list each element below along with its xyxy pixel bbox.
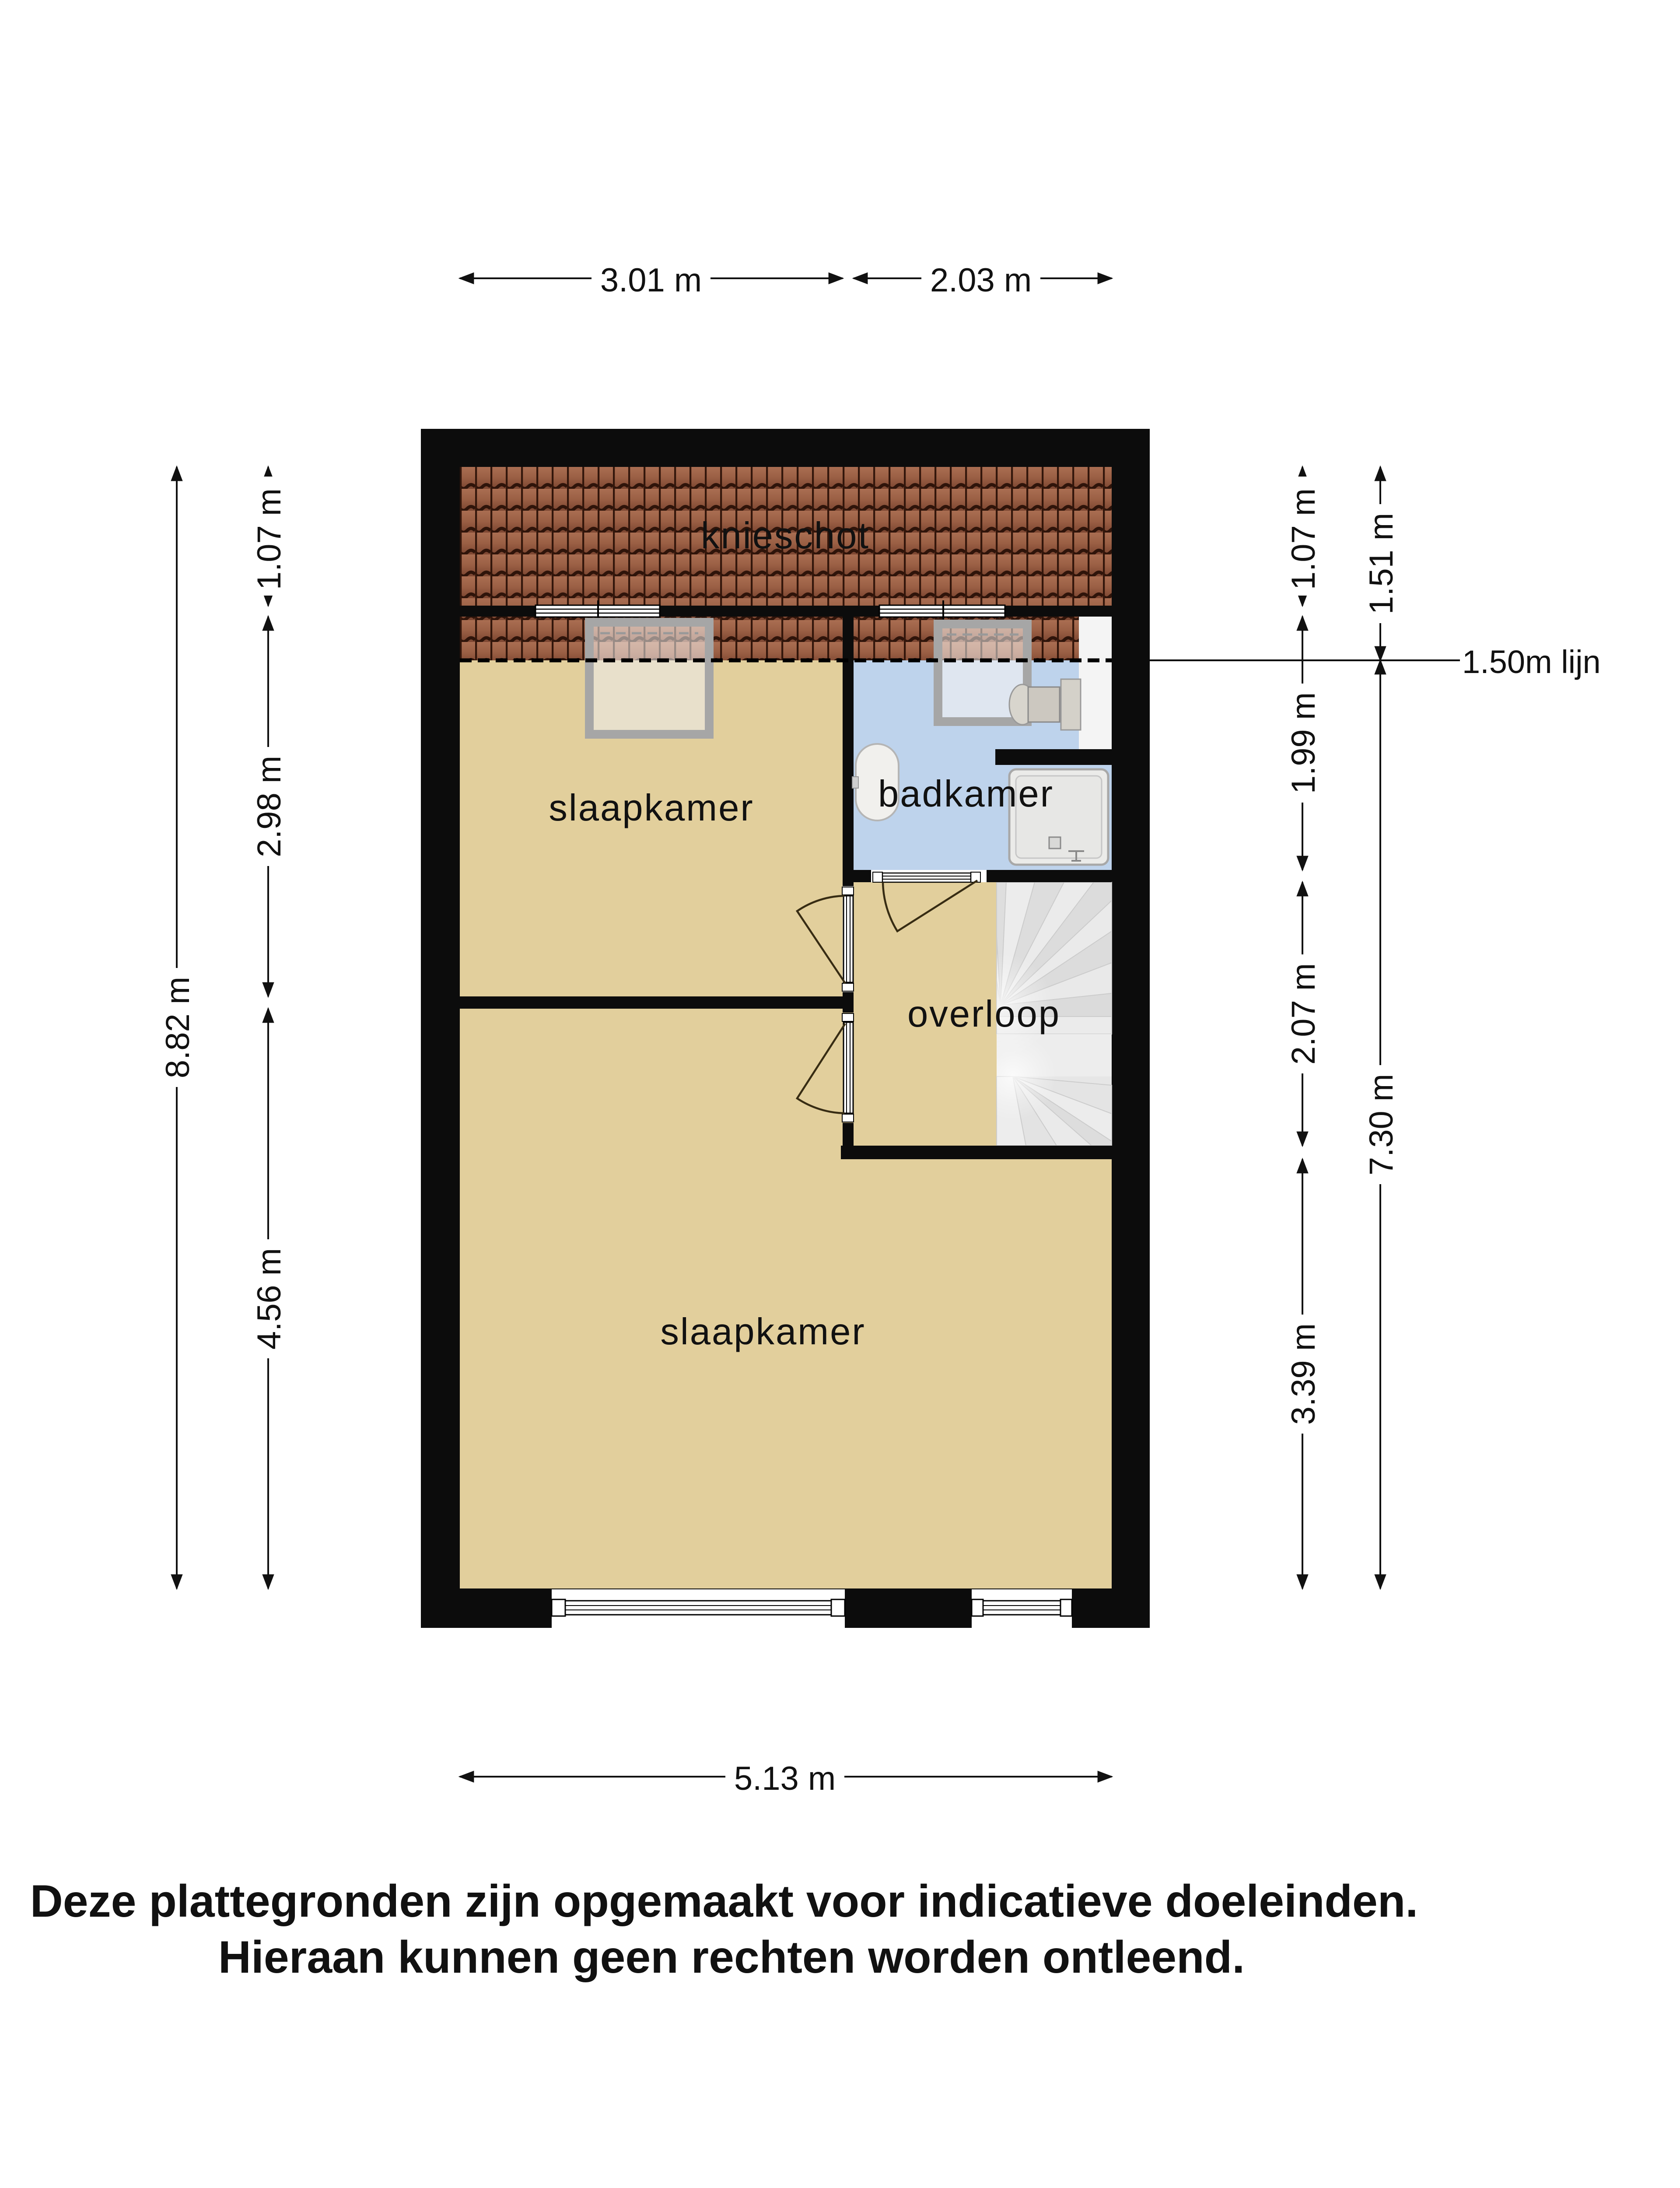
svg-text:1.51 m: 1.51 m <box>1363 513 1400 614</box>
svg-text:1.07 m: 1.07 m <box>1285 488 1322 590</box>
svg-text:slaapkamer: slaapkamer <box>549 787 754 829</box>
svg-text:5.13 m: 5.13 m <box>734 1760 836 1797</box>
svg-text:2.07 m: 2.07 m <box>1285 963 1322 1065</box>
svg-text:7.30 m: 7.30 m <box>1363 1074 1400 1175</box>
svg-text:1.99 m: 1.99 m <box>1285 692 1322 794</box>
svg-text:Deze plattegronden zijn opgema: Deze plattegronden zijn opgemaakt voor i… <box>30 1876 1418 1927</box>
svg-text:1.50m lijn: 1.50m lijn <box>1462 644 1601 680</box>
svg-text:2.98 m: 2.98 m <box>251 756 288 857</box>
svg-text:badkamer: badkamer <box>878 773 1054 815</box>
svg-text:slaapkamer: slaapkamer <box>660 1311 865 1353</box>
svg-text:4.56 m: 4.56 m <box>251 1248 288 1350</box>
svg-text:knieschot: knieschot <box>701 515 870 557</box>
svg-text:3.39 m: 3.39 m <box>1285 1323 1322 1425</box>
svg-text:overloop: overloop <box>907 993 1060 1035</box>
svg-text:8.82 m: 8.82 m <box>159 977 196 1078</box>
svg-text:1.07 m: 1.07 m <box>251 488 288 590</box>
svg-text:Hieraan kunnen geen rechten wo: Hieraan kunnen geen rechten worden ontle… <box>218 1932 1245 1983</box>
svg-text:3.01 m: 3.01 m <box>600 262 702 299</box>
svg-text:2.03 m: 2.03 m <box>930 262 1032 299</box>
